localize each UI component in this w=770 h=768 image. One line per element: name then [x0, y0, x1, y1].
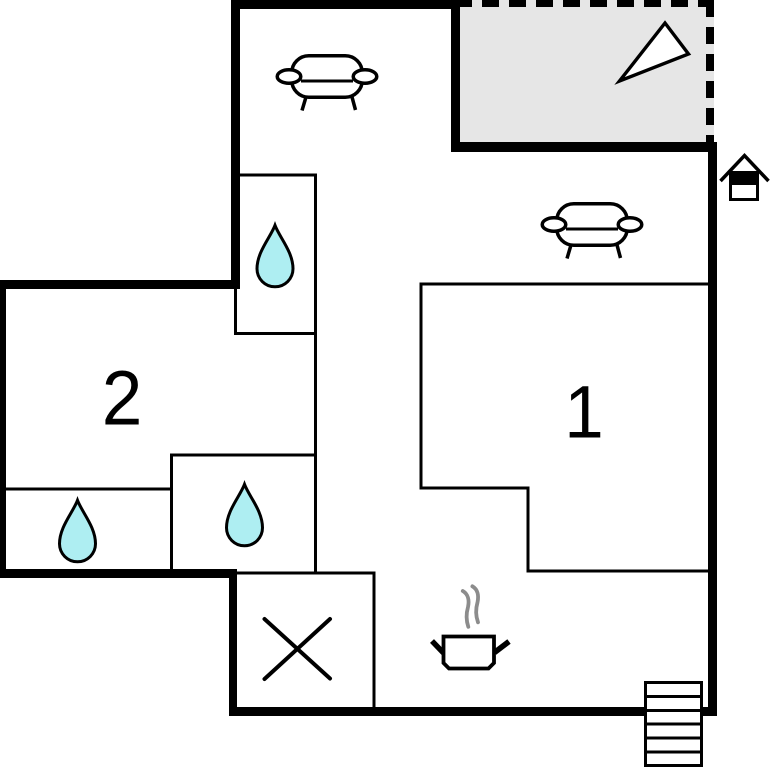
svg-text:2: 2 — [102, 355, 143, 441]
svg-text:1: 1 — [564, 371, 603, 454]
